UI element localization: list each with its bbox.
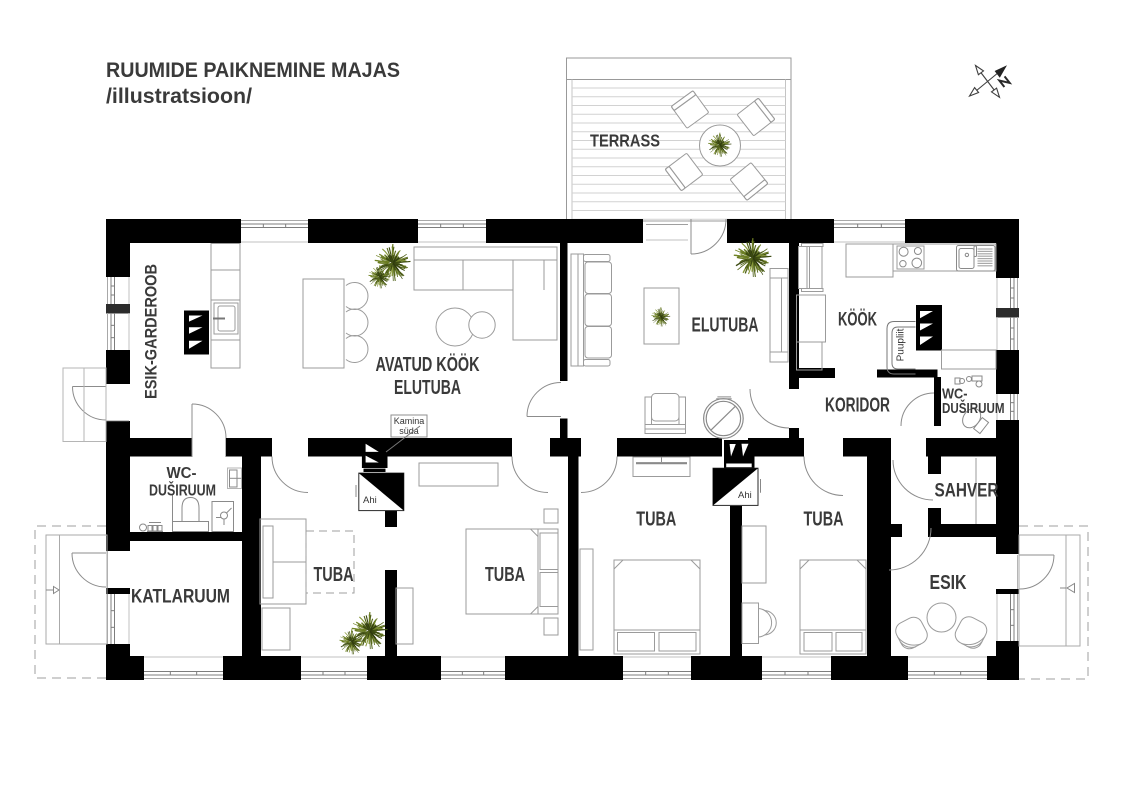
svg-text:Kamina: Kamina: [394, 416, 425, 426]
svg-text:/illustratsioon/: /illustratsioon/: [106, 85, 252, 108]
svg-text:Ahi: Ahi: [363, 495, 377, 506]
svg-text:KÖÖK: KÖÖK: [838, 308, 877, 331]
svg-text:ELUTUBA: ELUTUBA: [692, 314, 759, 337]
svg-text:SAHVER: SAHVER: [935, 481, 999, 502]
svg-text:KATLARUUM: KATLARUUM: [131, 586, 230, 608]
svg-text:TUBA: TUBA: [636, 508, 676, 530]
svg-text:Ahi: Ahi: [738, 490, 752, 501]
svg-text:KORIDOR: KORIDOR: [825, 395, 890, 417]
svg-text:DUŠIRUUM: DUŠIRUUM: [149, 482, 216, 500]
svg-text:TUBA: TUBA: [485, 564, 525, 586]
svg-text:TUBA: TUBA: [314, 564, 354, 586]
svg-text:RUUMIDE PAIKNEMINE MAJAS: RUUMIDE PAIKNEMINE MAJAS: [106, 59, 400, 82]
svg-text:Puupliit: Puupliit: [896, 328, 907, 361]
svg-text:TERRASS: TERRASS: [590, 131, 660, 151]
svg-text:TUBA: TUBA: [804, 508, 844, 530]
svg-text:ELUTUBA: ELUTUBA: [394, 376, 461, 399]
svg-text:WC-: WC-: [167, 465, 197, 482]
svg-text:ESIK: ESIK: [930, 572, 967, 594]
svg-text:DUŠIRUUM: DUŠIRUUM: [942, 399, 1005, 417]
svg-text:ESIK-GARDEROOB: ESIK-GARDEROOB: [142, 264, 161, 399]
svg-text:AVATUD KÖÖK: AVATUD KÖÖK: [376, 353, 480, 376]
